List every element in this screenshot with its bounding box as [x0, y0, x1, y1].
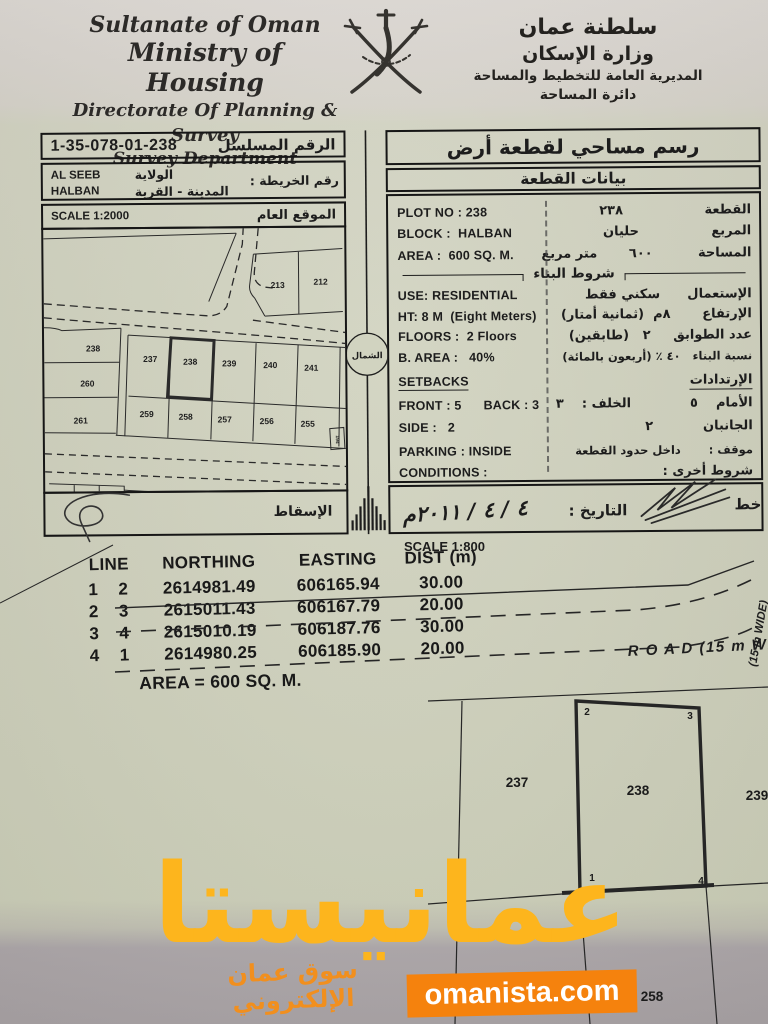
building-area-row: B. AREA : 40% نسبة البناء ٤٠ ٪ (أربعون ب… — [389, 344, 760, 369]
road-label-side: (15 m WIDE) — [747, 599, 768, 667]
detail-plot-237: 237 — [506, 775, 529, 790]
map-plot-238: 238 — [183, 357, 198, 367]
location-row: AL SEEB HALBAN الولاية المدينة - القرية … — [41, 160, 346, 200]
use-en: USE: RESIDENTIAL — [389, 288, 546, 303]
front-back-en: FRONT : 5 BACK : 3 — [390, 397, 547, 412]
map-plot-258: 258 — [179, 412, 194, 422]
wilaya-label-ar: الولاية — [135, 165, 244, 183]
site-map-drawing: 213 212 238 237 238 239 240 241 260 261 … — [43, 227, 346, 491]
site-location-map: 213 212 238 237 238 239 240 241 260 261 … — [41, 225, 348, 493]
header-directorate-ar: المديرية العامة للتخطيط والمساحة — [462, 67, 714, 86]
header-ministry: Ministry of Housing — [68, 38, 342, 98]
corner-point-2: 2 — [584, 707, 590, 718]
date-row: ٤ / ٤ / ٢٠١١م التاريخ : خط — [388, 482, 763, 534]
setbacks-ar: الإرتدادات — [690, 372, 753, 389]
building-area-ar: نسبة البناء ٤٠ ٪ (أربعون بالمائة) — [546, 348, 760, 364]
detail-plot-239: 239 — [746, 788, 768, 803]
town-value: HALBAN — [51, 183, 135, 200]
map-plot-259: 259 — [140, 409, 155, 419]
north-base-bars — [351, 486, 386, 530]
side-row: SIDE : 2 الجانبان ٢ — [390, 413, 761, 440]
map-plot-241: 241 — [304, 363, 319, 373]
plot-number-row: PLOT NO : 238 القطعة ٢٣٨ — [388, 199, 759, 223]
road-label: R O A D (15 m WIDE) — [627, 634, 768, 660]
north-indicator-column: الشمال — [345, 130, 388, 534]
watermark-site-badge: omanista.com — [407, 969, 638, 1017]
approval-signature-icon — [633, 467, 733, 526]
parking-row: PARKING : INSIDE موقف : داخل حدود القطعة — [390, 437, 761, 463]
main-panels: 1-35-078-01-238 الرقم المسلسل AL SEEB HA… — [40, 125, 763, 537]
header-ministry-ar: وزارة الإسكان — [462, 42, 714, 67]
plot-data-body: PLOT NO : 238 القطعة ٢٣٨ BLOCK : HALBAN … — [386, 191, 763, 483]
map-plot-238b: 238 — [86, 343, 101, 353]
date-label-ar: التاريخ : — [569, 501, 628, 519]
date-value-handwritten: ٤ / ٤ / ٢٠١١م — [402, 496, 529, 527]
document-title-ar: رسم مساحي لقطعة أرض — [385, 127, 760, 165]
location-values: AL SEEB HALBAN — [43, 164, 135, 199]
map-number-label: رقم الخريطة : — [250, 162, 344, 197]
map-plot-237: 237 — [143, 354, 158, 364]
map-utility-box-label: 194 — [334, 435, 340, 444]
area-en: AREA : 600 SQ. M. — [388, 247, 537, 262]
building-area-en: B. AREA : 40% — [389, 350, 546, 365]
detail-plot-258: 258 — [641, 989, 664, 1004]
general-site-label-ar: الموقع العام — [257, 207, 336, 223]
block-ar: المربع حليان — [545, 223, 759, 240]
header-country-ar: سلطنة عمان — [462, 14, 714, 42]
header-arabic: سلطنة عمان وزارة الإسكان المديرية العامة… — [462, 14, 714, 105]
wilaya-value: AL SEEB — [51, 167, 135, 184]
bracket-line-right — [625, 272, 746, 280]
area-ar: المساحة ٦٠٠ متر مربع — [537, 245, 759, 262]
header-country: Sultanate of Oman — [68, 12, 342, 38]
oman-emblem-icon — [340, 4, 432, 108]
plot-data-panel: رسم مساحي لقطعة أرض بيانات القطعة PLOT N… — [385, 125, 763, 534]
front-back-row: FRONT : 5 BACK : 3 الأمام ٥ الخلف : ٣ — [390, 392, 761, 416]
side-ar: الجانبان ٢ — [547, 418, 761, 435]
setbacks-header-row: SETBACKS الإرتدادات — [389, 366, 760, 395]
serial-number: 1-35-078-01-238 — [50, 136, 177, 155]
map-plot-239: 239 — [222, 358, 237, 368]
map-plot-255: 255 — [301, 419, 316, 429]
block-row: BLOCK : HALBAN المربع حليان — [388, 220, 759, 244]
north-label-ar: الشمال — [352, 350, 383, 360]
setbacks-en: SETBACKS — [398, 374, 468, 391]
height-en: HT: 8 M (Eight Meters) — [389, 308, 546, 323]
map-plot-256: 256 — [260, 416, 275, 426]
map-plot-212: 212 — [313, 277, 328, 287]
north-arrow-icon: الشمال — [345, 130, 388, 534]
watermark-site-url: omanista.com — [424, 975, 620, 1012]
header-department-ar: دائرة المساحة — [462, 86, 714, 105]
side-en: SIDE : 2 — [390, 420, 547, 435]
floors-ar: عدد الطوابق ٢ (طابقين) — [546, 327, 760, 344]
front-back-ar: الأمام ٥ الخلف : ٣ — [547, 395, 761, 412]
bracket-line-left — [403, 274, 524, 282]
scanned-land-survey-document: Sultanate of Oman Ministry of Housing Di… — [0, 0, 768, 1024]
left-panel: 1-35-078-01-238 الرقم المسلسل AL SEEB HA… — [40, 128, 348, 536]
site-map-scale: SCALE 1:2000 — [51, 210, 129, 223]
map-plot-213: 213 — [271, 280, 286, 290]
use-ar: الإستعمال سكني فقط — [546, 286, 760, 303]
detail-scale-label: SCALE 1:800 — [404, 539, 485, 554]
watermark-tagline-ar: سوق عمان الإلكتروني — [175, 954, 411, 1018]
map-plot-257: 257 — [218, 414, 233, 424]
serial-number-row: 1-35-078-01-238 الرقم المسلسل — [40, 130, 345, 159]
planner-text-fragment-ar: خط — [734, 495, 761, 513]
location-labels-ar: الولاية المدينة - القرية — [135, 163, 250, 198]
serial-label-ar: الرقم المسلسل — [218, 135, 336, 154]
plot-no-ar: القطعة ٢٣٨ — [545, 202, 759, 219]
block-en: BLOCK : HALBAN — [388, 225, 545, 240]
corner-point-4: 4 — [698, 876, 704, 887]
map-plot-240: 240 — [263, 360, 278, 370]
conditions-en: CONDITIONS : — [390, 465, 547, 480]
floors-en: FLOORS : 2 Floors — [389, 329, 546, 344]
map-plot-260: 260 — [80, 378, 95, 388]
projection-row: الإسقاط — [43, 489, 348, 536]
watermark-logo-ar: عمانيستا — [158, 838, 628, 970]
projection-label-ar: الإسقاط — [273, 504, 332, 520]
height-ar: الإرتفاع ٨م (ثمانية أمتار) — [546, 306, 760, 323]
detail-plot-238: 238 — [627, 783, 650, 798]
corner-point-3: 3 — [687, 711, 693, 722]
plot-data-subtitle-ar: بيانات القطعة — [386, 165, 761, 192]
town-label-ar: المدينة - القرية — [135, 182, 244, 200]
height-row: HT: 8 M (Eight Meters) الإرتفاع ٨م (ثمان… — [389, 303, 760, 327]
map-plot-261: 261 — [74, 415, 89, 425]
area-row: AREA : 600 SQ. M. المساحة ٦٠٠ متر مربع — [388, 241, 759, 267]
parking-ar: موقف : داخل حدود القطعة — [547, 442, 761, 458]
parking-en: PARKING : INSIDE — [390, 443, 547, 458]
plot-no-en: PLOT NO : 238 — [388, 204, 545, 219]
